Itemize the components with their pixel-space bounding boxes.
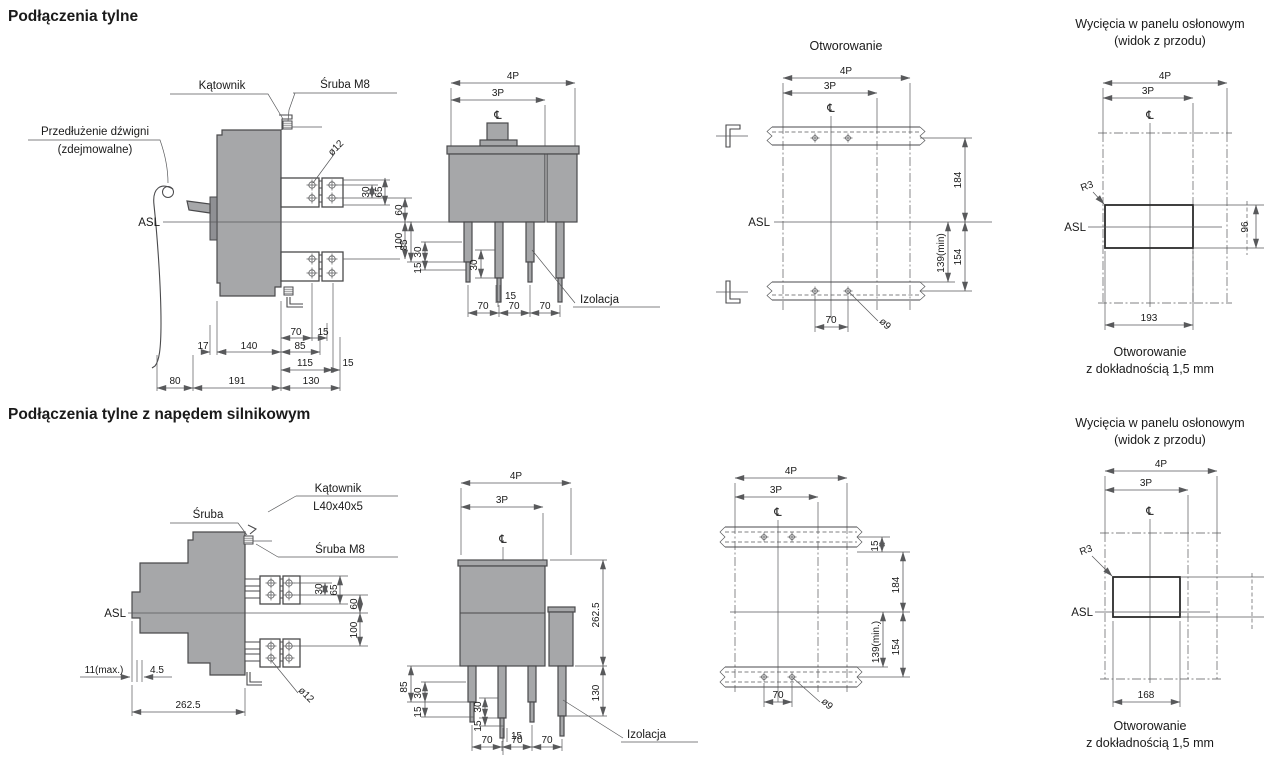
dim-262-5: 262.5: [591, 602, 602, 627]
title-line1: Wycięcia w panelu osłonowym: [1075, 416, 1244, 430]
label-lever-1: Przedłużenie dźwigni: [41, 126, 149, 138]
centerline-symbol: ℄: [498, 534, 507, 546]
dim-30b: 30: [469, 259, 480, 271]
dim-15a: 15: [317, 327, 329, 338]
breaker-body-side: [152, 130, 281, 368]
dimension-lines-top: [783, 78, 910, 125]
mounting-strip-top: [767, 127, 925, 145]
dim-4p: 4P: [1159, 71, 1172, 82]
dim-193: 193: [1141, 313, 1158, 324]
centerline-symbol: ℄: [1145, 506, 1154, 518]
label-katownik-2: L40x40x5: [313, 501, 363, 513]
dim-15a: 15: [413, 706, 424, 718]
label-asl: ASL: [748, 217, 770, 229]
title-line1: Wycięcia w panelu osłonowym: [1075, 17, 1244, 31]
dim-11max: 11(max.): [85, 665, 124, 676]
dim-dia12: ø12: [326, 138, 346, 158]
dim-140: 140: [241, 341, 258, 352]
dimension-lines-right: [764, 537, 910, 707]
breaker-body-motor-side: [132, 532, 245, 675]
busbars-bottom: [281, 252, 343, 281]
drawing-rear-side-view: Kątownik Śruba M8 Przedłużenie dźwigni (…: [20, 55, 420, 400]
mounting-strip-bottom: [767, 282, 925, 300]
dim-85: 85: [294, 341, 306, 352]
drawing-title: Otworowanie: [810, 39, 883, 53]
label-lever-2: (zdejmowalne): [58, 144, 133, 156]
dim-70a: 70: [481, 735, 493, 746]
dim-3p: 3P: [492, 88, 505, 99]
dim-154: 154: [953, 248, 964, 265]
drawing-motor-panel-cutout: Wycięcia w panelu osłonowym (widok z prz…: [1000, 415, 1264, 778]
reference-lines: [1098, 123, 1247, 307]
label-asl: ASL: [104, 608, 126, 620]
fourth-pole: [549, 612, 573, 666]
dim-15b: 15: [342, 358, 354, 369]
dim-139min: 139(min): [936, 233, 947, 272]
dim-184: 184: [953, 171, 964, 188]
dim-154: 154: [891, 638, 902, 655]
dim-4p: 4P: [1155, 459, 1168, 470]
label-sruba: Śruba: [193, 508, 224, 521]
dim-168: 168: [1138, 690, 1155, 701]
mounting-strip-bottom: [720, 667, 862, 687]
cutout-rectangle: [1105, 205, 1193, 248]
breaker-body-front: [447, 123, 579, 302]
caption-line1: Otworowanie: [1114, 345, 1187, 359]
bottom-bracket: [247, 672, 262, 685]
lever-stub: [187, 201, 210, 213]
dimension-lines-right: [815, 138, 972, 332]
dim-80: 80: [169, 376, 181, 387]
mounting-strip-top: [720, 527, 862, 547]
reference-lines: [1100, 519, 1252, 683]
dim-100: 100: [349, 621, 360, 638]
lever-mount-plate: [210, 197, 217, 240]
label-r3: R3: [1078, 543, 1094, 558]
fourth-pole-cap: [548, 607, 575, 612]
dim-70b: 70: [511, 735, 523, 746]
dim-dia9: ø9: [877, 316, 893, 332]
dim-70a: 70: [477, 301, 489, 312]
bottom-bracket-and-screw: [284, 287, 303, 307]
cutout-rectangle: [1113, 577, 1180, 617]
reference-lines: [774, 116, 992, 318]
dim-4p: 4P: [510, 471, 523, 482]
dim-65: 65: [329, 584, 340, 596]
caption-line2: z dokładnością 1,5 mm: [1086, 362, 1214, 376]
dim-70c: 70: [539, 301, 551, 312]
dim-3p: 3P: [770, 485, 783, 496]
dim-130: 130: [591, 684, 602, 701]
dim-30: 30: [314, 583, 325, 595]
dim-70: 70: [825, 315, 837, 326]
dim-70: 70: [772, 690, 784, 701]
dim-30a: 30: [413, 246, 424, 258]
dimension-lines-right: [1193, 205, 1264, 248]
dim-191: 191: [229, 376, 246, 387]
label-katownik: Kątownik: [199, 80, 246, 92]
dim-70: 70: [290, 327, 302, 338]
label-asl: ASL: [1071, 607, 1093, 619]
caption-line1: Otworowanie: [1114, 719, 1187, 733]
dim-139min: 139(min.): [871, 621, 882, 663]
dim-3p: 3P: [824, 81, 837, 92]
dim-262-5: 262.5: [175, 700, 200, 711]
dimension-lines-top: [1103, 83, 1227, 133]
dim-4p: 4P: [840, 66, 853, 77]
drawing-motor-front-view: 4P 3P ℄ 262.5 130 85 30 15 30 15 15 70 7…: [395, 455, 700, 778]
section-heading-1: Podłączenia tylne: [8, 8, 138, 26]
label-sruba-m8: Śruba M8: [315, 543, 365, 556]
handle-cap: [487, 123, 508, 140]
title-line2: (widok z przodu): [1114, 34, 1206, 48]
dim-dia12: ø12: [296, 685, 316, 705]
label-r3: R3: [1079, 179, 1095, 194]
centerline-symbol: ℄: [773, 507, 782, 519]
dim-30a: 30: [413, 687, 424, 699]
page: Podłączenia tylne Podłączenia tylne z na…: [0, 0, 1264, 778]
label-katownik-1: Kątownik: [315, 483, 362, 495]
dim-85: 85: [399, 239, 410, 251]
dim-70b: 70: [508, 301, 520, 312]
drawing-motor-side-view: Śruba Kątownik L40x40x5 Śruba M8 ASL 30 …: [20, 455, 420, 778]
label-sruba-m8: Śruba M8: [320, 78, 370, 91]
dim-184: 184: [891, 576, 902, 593]
dim-3p: 3P: [496, 495, 509, 506]
top-bracket-and-screw: [244, 525, 272, 544]
dim-4-5: 4.5: [150, 665, 164, 676]
angle-bracket-top-icon: [716, 125, 748, 147]
caption-line2: z dokładnością 1,5 mm: [1086, 736, 1214, 750]
drawing-drilling-plan: Otworowanie: [700, 30, 1000, 370]
dim-4p: 4P: [507, 71, 520, 82]
dim-15: 15: [870, 540, 881, 552]
dim-15a: 15: [413, 262, 424, 274]
busbars-top: [281, 178, 343, 207]
top-bracket-and-screw: [279, 115, 322, 130]
busbars-top: [245, 576, 300, 604]
dimension-lines-top: [735, 478, 847, 525]
section-heading-2: Podłączenia tylne z napędem silnikowym: [8, 406, 310, 424]
label-izolacja: Izolacja: [627, 729, 667, 741]
drawing-rear-front-view: 4P 3P ℄ 85 30 15 30 15 70 70 70 Izolacja: [395, 55, 695, 375]
centerline-symbol: ℄: [826, 103, 835, 115]
title-line2: (widok z przodu): [1114, 433, 1206, 447]
dim-30: 30: [361, 186, 372, 198]
dim-30b: 30: [473, 701, 484, 713]
angle-bracket-bottom-icon: [716, 281, 748, 303]
dim-3p: 3P: [1140, 478, 1153, 489]
dim-115: 115: [297, 358, 313, 369]
r3-leader: [1093, 192, 1104, 204]
dim-130: 130: [303, 376, 320, 387]
drawing-motor-drilling-plan: 4P 3P ℄ 15 184 154 139(min.) 70 ø9: [700, 440, 1000, 778]
dimension-lines-top: [1105, 471, 1217, 533]
centerline-symbol: ℄: [1145, 110, 1154, 122]
dim-3p: 3P: [1142, 86, 1155, 97]
r3-leader: [1092, 556, 1112, 576]
dim-15b: 15: [473, 720, 484, 732]
dim-17: 17: [197, 341, 209, 352]
dim-85: 85: [399, 681, 410, 693]
busbars-bottom: [245, 639, 300, 667]
dim-60: 60: [349, 598, 360, 610]
drawing-panel-cutout: Wycięcia w panelu osłonowym (widok z prz…: [1000, 15, 1264, 390]
dimension-lines-right: [1180, 577, 1264, 617]
label-asl: ASL: [138, 217, 160, 229]
dim-dia9: ø9: [819, 696, 835, 712]
dim-70c: 70: [541, 735, 553, 746]
dim-height: 96: [1240, 221, 1251, 233]
lever-extension-outline: [152, 186, 173, 368]
fourth-pole: [547, 154, 577, 222]
dim-65: 65: [374, 186, 385, 198]
label-izolacja: Izolacja: [580, 294, 620, 306]
label-asl: ASL: [1064, 222, 1086, 234]
centerline-symbol: ℄: [493, 110, 502, 122]
dim-4p: 4P: [785, 466, 798, 477]
